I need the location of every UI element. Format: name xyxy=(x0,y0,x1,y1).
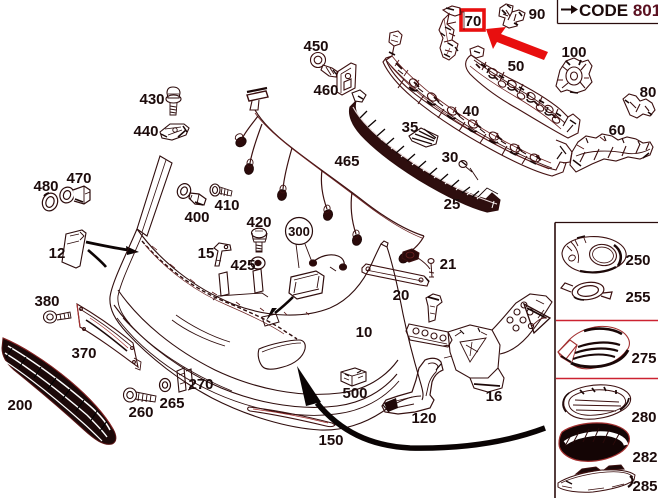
svg-text:12: 12 xyxy=(49,245,66,262)
svg-text:250: 250 xyxy=(625,252,650,269)
svg-text:60: 60 xyxy=(609,122,626,139)
svg-text:265: 265 xyxy=(159,395,184,412)
svg-text:50: 50 xyxy=(508,58,525,75)
svg-text:450: 450 xyxy=(303,38,328,55)
svg-text:410: 410 xyxy=(214,197,239,214)
svg-text:400: 400 xyxy=(184,209,209,226)
svg-text:420: 420 xyxy=(246,214,271,231)
svg-text:20: 20 xyxy=(393,287,410,304)
svg-text:CODE 801: CODE 801 xyxy=(579,1,658,20)
svg-text:25: 25 xyxy=(444,196,461,213)
svg-text:80: 80 xyxy=(640,84,657,101)
svg-text:100: 100 xyxy=(561,44,586,61)
svg-text:120: 120 xyxy=(411,410,436,427)
svg-text:465: 465 xyxy=(334,153,359,170)
svg-text:470: 470 xyxy=(66,170,91,187)
svg-text:460: 460 xyxy=(313,82,338,99)
svg-text:200: 200 xyxy=(7,397,32,414)
svg-text:15: 15 xyxy=(198,245,215,262)
svg-text:30: 30 xyxy=(442,149,459,166)
svg-text:35: 35 xyxy=(402,119,419,136)
svg-text:255: 255 xyxy=(625,289,650,306)
svg-text:370: 370 xyxy=(71,345,96,362)
svg-text:260: 260 xyxy=(128,404,153,421)
svg-text:500: 500 xyxy=(342,385,367,402)
svg-text:40: 40 xyxy=(463,103,480,120)
svg-text:150: 150 xyxy=(318,432,343,449)
svg-text:300: 300 xyxy=(288,224,310,239)
svg-text:275: 275 xyxy=(631,350,656,367)
svg-text:70: 70 xyxy=(465,13,482,30)
svg-text:425: 425 xyxy=(230,257,255,274)
svg-text:282: 282 xyxy=(632,449,657,466)
svg-text:480: 480 xyxy=(33,178,58,195)
svg-text:440: 440 xyxy=(133,123,158,140)
svg-text:380: 380 xyxy=(34,293,59,310)
svg-text:430: 430 xyxy=(139,91,164,108)
svg-text:285: 285 xyxy=(632,478,657,495)
svg-text:21: 21 xyxy=(440,256,457,273)
svg-text:10: 10 xyxy=(356,324,373,341)
svg-text:270: 270 xyxy=(188,376,213,393)
svg-text:16: 16 xyxy=(486,388,503,405)
svg-text:90: 90 xyxy=(529,6,546,23)
svg-text:280: 280 xyxy=(631,409,656,426)
